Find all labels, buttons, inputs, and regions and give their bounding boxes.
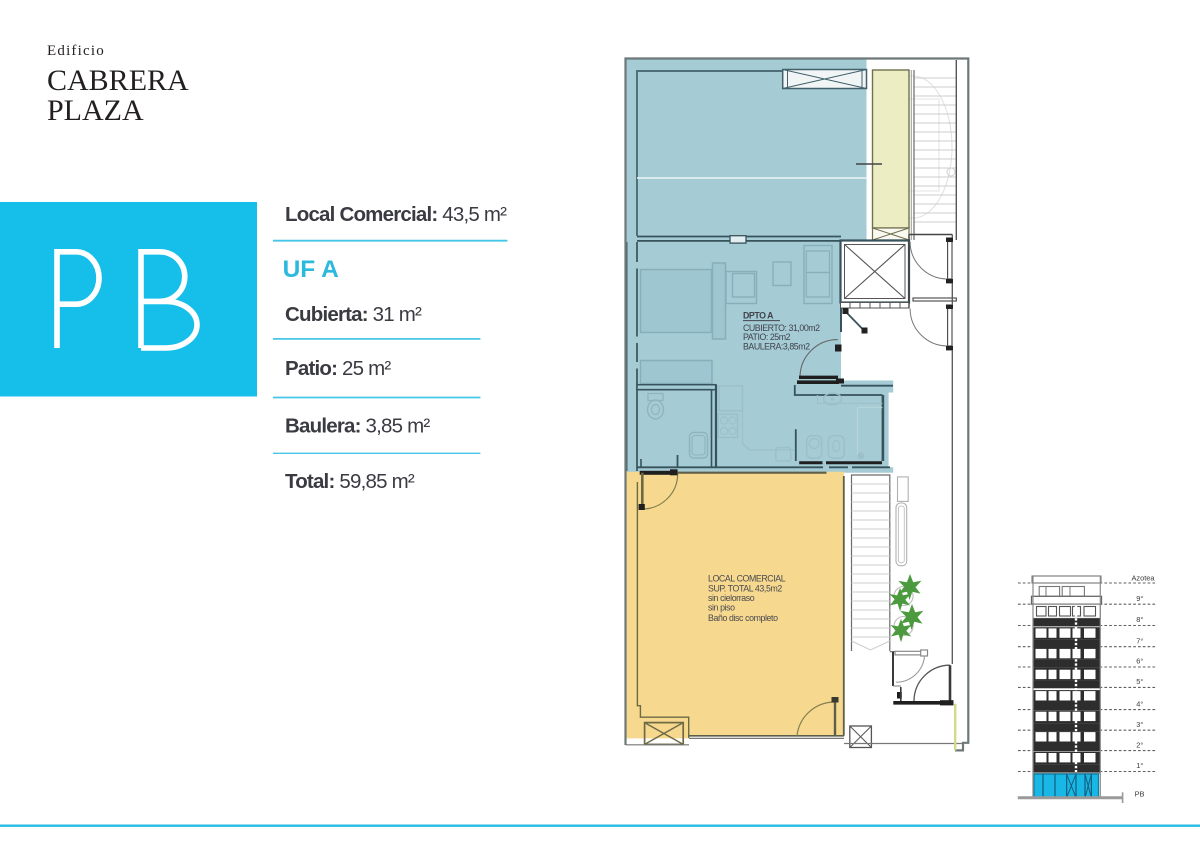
svg-text:LOCAL COMERCIAL: LOCAL COMERCIAL	[708, 574, 786, 584]
svg-text:Patio: 25 m²: Patio: 25 m²	[285, 357, 391, 380]
svg-text:Azotea: Azotea	[1132, 574, 1156, 583]
svg-text:sin piso: sin piso	[708, 603, 735, 613]
svg-text:6°: 6°	[1136, 657, 1143, 666]
svg-text:Local Comercial: 43,5 m²: Local Comercial: 43,5 m²	[285, 203, 507, 226]
svg-text:8°: 8°	[1136, 615, 1143, 624]
svg-text:BAULERA:3,85m2: BAULERA:3,85m2	[743, 341, 810, 351]
svg-text:2°: 2°	[1136, 740, 1143, 749]
svg-text:Total: 59,85 m²: Total: 59,85 m²	[285, 470, 415, 493]
svg-text:3°: 3°	[1136, 720, 1143, 729]
svg-text:5°: 5°	[1136, 677, 1143, 686]
svg-text:PB: PB	[1135, 790, 1145, 799]
svg-text:PLAZA: PLAZA	[47, 94, 144, 127]
svg-text:1°: 1°	[1136, 761, 1143, 770]
svg-text:9°: 9°	[1136, 594, 1143, 603]
svg-text:Baulera: 3,85 m²: Baulera: 3,85 m²	[285, 414, 430, 437]
svg-text:Edificio: Edificio	[47, 43, 105, 59]
svg-text:7°: 7°	[1136, 636, 1143, 645]
svg-text:SUP. TOTAL 43,5m2: SUP. TOTAL 43,5m2	[708, 583, 782, 593]
svg-text:Cubierta: 31 m²: Cubierta: 31 m²	[285, 303, 422, 326]
svg-text:4°: 4°	[1136, 699, 1143, 708]
svg-text:CABRERA: CABRERA	[47, 64, 189, 97]
svg-text:UF A: UF A	[283, 256, 340, 283]
svg-text:DPTO A: DPTO A	[743, 311, 774, 321]
svg-text:Baño disc completo: Baño disc completo	[708, 613, 778, 623]
